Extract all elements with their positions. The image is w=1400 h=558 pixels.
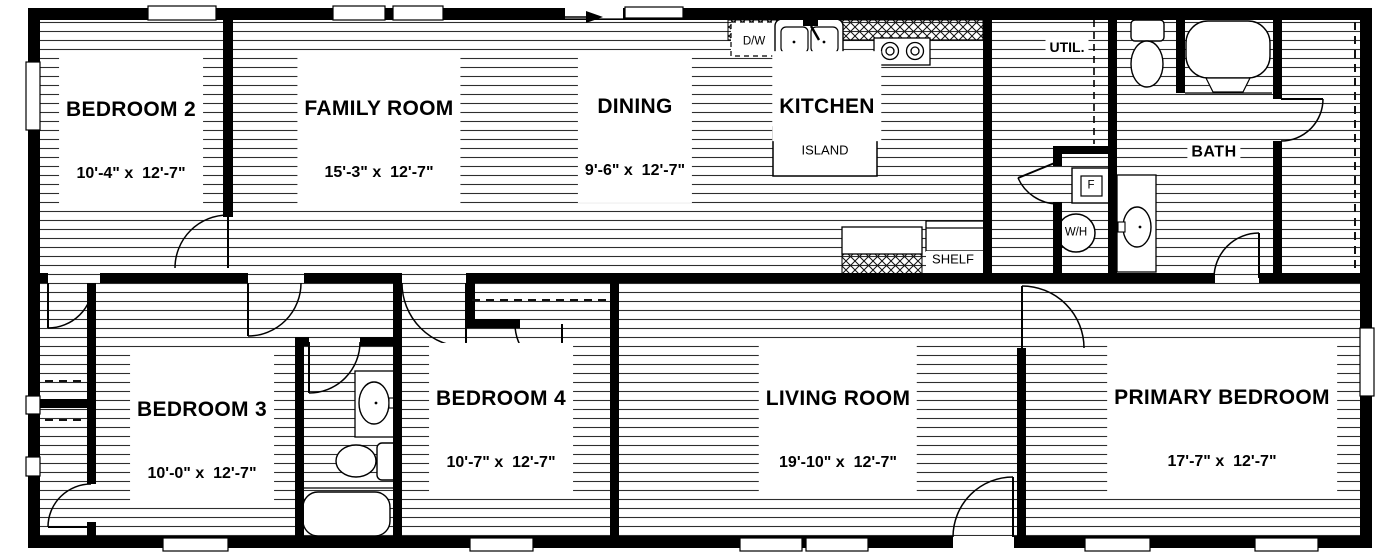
- range: [874, 38, 930, 65]
- vanity-sink-hall-bath: [355, 371, 396, 437]
- dishwasher-label: D/W: [743, 35, 765, 50]
- room-label-kitchen: KITCHEN: [772, 51, 881, 141]
- window-left-bedroom3-1: [26, 396, 40, 414]
- water-heater-label: W/H: [1065, 226, 1087, 241]
- window-bottom-bedroom3: [163, 538, 228, 551]
- room-label-dining: DINING 9'-6" x 12'-7": [578, 51, 692, 203]
- room-label-primary-bedroom: PRIMARY BEDROOM 17'-7" x 12'-7": [1107, 342, 1337, 494]
- toilet-hall-bath: [336, 443, 398, 480]
- toilet-primary-bath: [1131, 20, 1164, 87]
- room-name: DINING: [585, 93, 685, 120]
- window-bottom-living-1: [740, 538, 802, 551]
- room-dims: 9'-6" x 12'-7": [585, 161, 685, 182]
- floor-plan: BEDROOM 2 10'-4" x 12'-7" FAMILY ROOM 15…: [0, 0, 1400, 558]
- window-bottom-primary-2: [1255, 538, 1318, 551]
- window-top-dining: [625, 7, 683, 18]
- shelf-label: SHELF: [932, 252, 974, 269]
- util-label: UTIL.: [1046, 38, 1089, 56]
- room-label-bedroom4: BEDROOM 4 10'-7" x 12'-7": [429, 343, 573, 495]
- room-dims: 15'-3" x 12'-7": [304, 163, 453, 184]
- island-label: ISLAND: [802, 143, 849, 160]
- room-name: BEDROOM 3: [137, 396, 267, 423]
- room-dims: 19'-10" x 12'-7": [766, 453, 910, 474]
- room-dims: 10'-7" x 12'-7": [436, 453, 566, 474]
- room-dims: 17'-7" x 12'-7": [1114, 452, 1330, 473]
- bath-label: BATH: [1187, 143, 1240, 164]
- room-name: PRIMARY BEDROOM: [1114, 384, 1330, 411]
- room-label-family-room: FAMILY ROOM 15'-3" x 12'-7": [297, 53, 460, 205]
- window-right-primary: [1360, 328, 1374, 396]
- furnace-label: F: [1087, 179, 1094, 194]
- room-name: BEDROOM 2: [66, 96, 196, 123]
- room-name: LIVING ROOM: [766, 385, 910, 412]
- window-bottom-bedroom4: [470, 538, 533, 551]
- window-top-family-1: [333, 6, 385, 20]
- window-top-family-2: [393, 6, 443, 20]
- room-dims: 10'-4" x 12'-7": [66, 164, 196, 185]
- room-name: BEDROOM 4: [436, 385, 566, 412]
- window-left-bedroom3-2: [26, 457, 40, 476]
- room-name: FAMILY ROOM: [304, 95, 453, 122]
- room-label-bedroom2: BEDROOM 2 10'-4" x 12'-7": [59, 54, 203, 206]
- window-top-bedroom2: [148, 6, 216, 20]
- bathtub-hall-bath: [303, 488, 393, 536]
- room-label-living-room: LIVING ROOM 19'-10" x 12'-7": [759, 343, 917, 495]
- window-left-bedroom2: [26, 62, 40, 130]
- window-bottom-primary-1: [1085, 538, 1150, 551]
- room-dims: 10'-0" x 12'-7": [137, 464, 267, 485]
- room-name: KITCHEN: [779, 93, 874, 120]
- window-bottom-living-2: [806, 538, 868, 551]
- vanity-sink-primary-bath: [1117, 175, 1156, 272]
- room-label-bedroom3: BEDROOM 3 10'-0" x 12'-7": [130, 354, 274, 506]
